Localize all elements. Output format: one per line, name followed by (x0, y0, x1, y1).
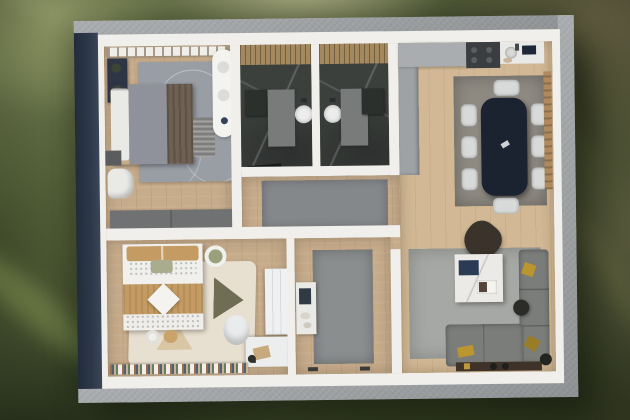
nightstand (105, 150, 121, 165)
kitchen-counter (398, 42, 466, 67)
bed-1 (110, 84, 193, 165)
desk-lamp (248, 355, 256, 363)
faucet (301, 98, 307, 102)
entry-rug (313, 249, 374, 364)
floorplan (74, 15, 579, 403)
bed1-duvet (128, 84, 167, 164)
sink-counter (500, 41, 544, 64)
console-item (502, 363, 509, 370)
screenshot-root (0, 0, 630, 420)
room-bathroom-2 (319, 43, 390, 176)
media-console (456, 361, 542, 371)
framed-art (299, 288, 311, 304)
sofa-bottom-section (445, 324, 524, 367)
wardrobe-white (265, 268, 290, 334)
vanity-dark (362, 88, 384, 114)
counter-vertical (398, 67, 419, 175)
hallway-rug (262, 179, 389, 229)
bowl (503, 58, 512, 63)
faucet (330, 98, 336, 102)
slat-wall (240, 44, 311, 65)
dining-chair (461, 136, 477, 158)
ladder-shelf (543, 71, 552, 189)
burner (471, 57, 477, 63)
vanity-dark (245, 90, 267, 116)
dining-chair (493, 198, 519, 214)
bed-2 (122, 244, 203, 331)
dining-chair (461, 104, 477, 126)
dining-chair (493, 80, 519, 96)
tray-navy (459, 260, 479, 275)
dining-table-navy (481, 98, 528, 197)
planter-white (145, 330, 159, 344)
plant-pot-dark (540, 353, 552, 365)
burner (486, 47, 492, 53)
kitchen-faucet (515, 44, 519, 51)
wall-entry-right (390, 249, 402, 373)
console-item (490, 363, 497, 370)
door-mark (360, 366, 370, 370)
room-bathroom-1 (240, 44, 313, 177)
round-lamp-table (204, 245, 226, 267)
armchair-white (107, 168, 133, 198)
bed1-throw-brown (166, 84, 193, 164)
plant-pot (111, 63, 121, 72)
appliance-navy (522, 45, 536, 54)
bath-mat (268, 89, 296, 146)
coffee-table-marble (455, 254, 504, 303)
burner (486, 57, 492, 63)
basin-sink (324, 105, 342, 123)
low-bookshelf (110, 363, 248, 375)
basket-tan (163, 330, 177, 343)
crib-detail (218, 89, 230, 101)
bed2-footboard (125, 314, 201, 329)
book-photo (479, 282, 487, 292)
table-decor (501, 140, 510, 148)
burner (471, 47, 477, 53)
rug-triangle-olive (213, 277, 244, 319)
slat-wall (319, 43, 388, 64)
wall-console (296, 282, 317, 334)
cooktop-dark (466, 42, 500, 68)
decor-plate (303, 322, 311, 328)
crib-detail (217, 61, 229, 73)
desk (246, 336, 288, 367)
decor-plate (300, 312, 310, 319)
side-table-round (513, 300, 529, 316)
basin-sink (295, 105, 313, 123)
crib-detail (221, 117, 228, 124)
dining-chair (462, 168, 478, 190)
wall-shelf (108, 46, 226, 56)
desk-chair (223, 315, 249, 345)
door-mark (308, 367, 318, 371)
bed2-green-pillow (151, 260, 173, 273)
console-item (464, 363, 470, 369)
